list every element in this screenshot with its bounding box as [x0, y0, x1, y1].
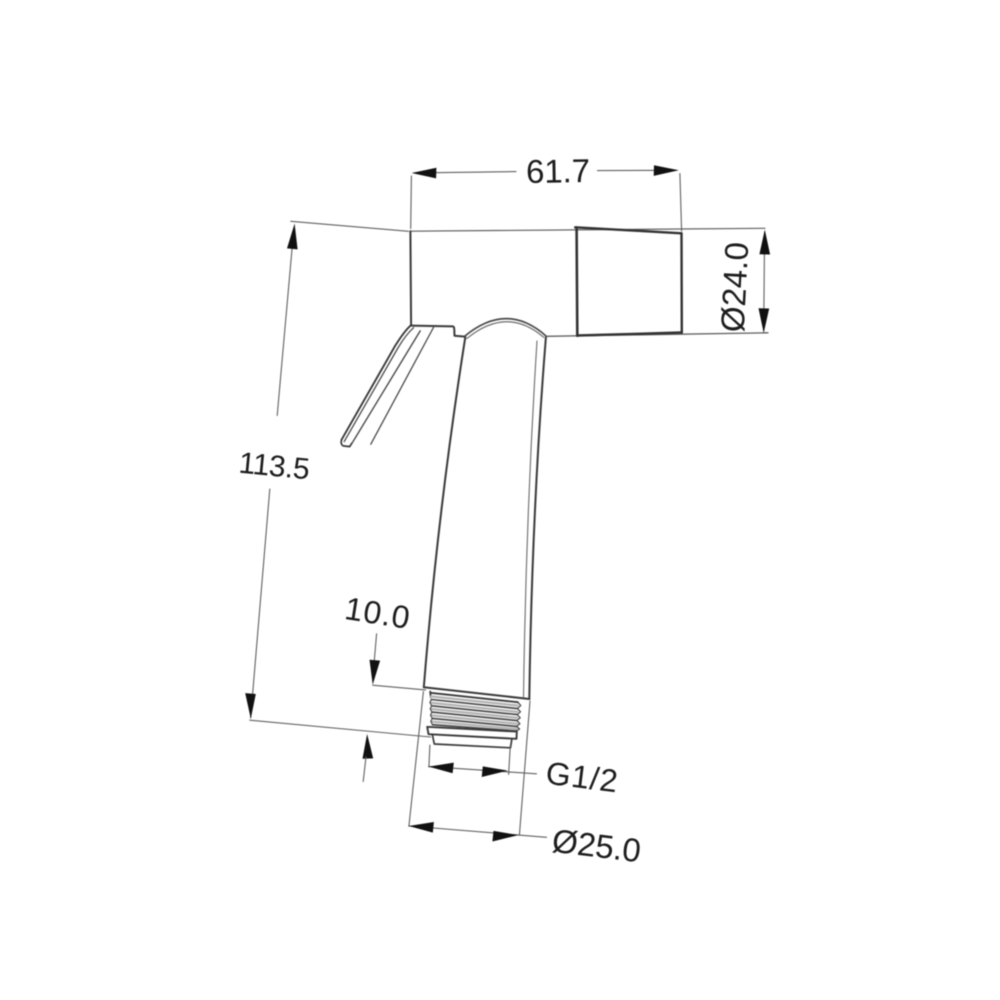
- svg-text:10.0: 10.0: [342, 590, 412, 636]
- svg-text:113.5: 113.5: [237, 447, 311, 487]
- svg-text:Ø25.0: Ø25.0: [550, 822, 643, 870]
- svg-text:61.7: 61.7: [526, 152, 591, 190]
- svg-text:G1/2: G1/2: [544, 755, 620, 800]
- svg-text:Ø24.0: Ø24.0: [714, 241, 756, 333]
